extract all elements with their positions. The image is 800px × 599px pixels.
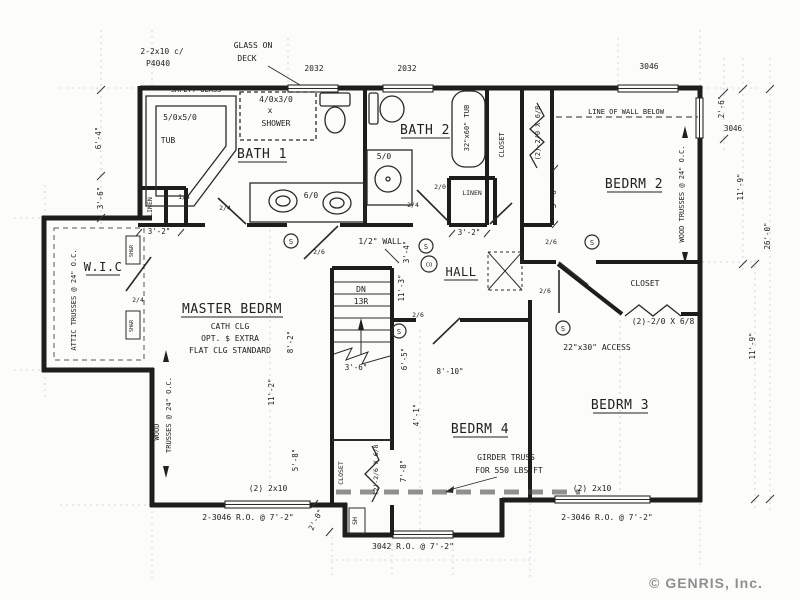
dim-8-10: 8'-10" [436, 367, 463, 376]
attic-access-note: 22"x30" ACCESS [563, 343, 631, 352]
truss-arrow-up [682, 126, 688, 138]
sink [375, 166, 401, 192]
room-label-master: MASTER BEDRM [182, 302, 282, 317]
smoke-detector-label: S [561, 325, 565, 333]
bedrm4-closet-door-size: (2)-2/6 X 6/8 [372, 444, 380, 495]
room-label-wic: W.I.C [84, 260, 123, 274]
shower-x-label: x [268, 106, 273, 115]
door-size-2-0: 2/0 [434, 183, 446, 191]
smoke-detector-label: S [397, 328, 401, 336]
shower-label: SHOWER [262, 119, 291, 128]
co-detector-label: CO [426, 263, 433, 269]
dim-11-2: 11'-2" [267, 378, 276, 405]
plan-text-labels: 2-2x10 c/ P4040 GLASS ON DECK 2032 2032 … [70, 41, 772, 591]
line-of-wall-below-note: LINE OF WALL BELOW [588, 108, 665, 116]
tub-size-label: 5/0x5/0 [163, 113, 197, 122]
tub-label: TUB [161, 136, 176, 145]
hall-closet-label: CLOSET [498, 132, 506, 158]
room-label-bath2: BATH 2 [400, 123, 450, 138]
smoke-detector-label: S [289, 238, 293, 246]
dim-8-2: 8'-2" [286, 331, 295, 354]
shelf-rod-label: SH&R [129, 319, 135, 332]
girder-leader [449, 477, 497, 490]
wood-truss-note-line1: WOOD [153, 424, 161, 441]
genris-watermark: © GENRIS, Inc. [649, 575, 763, 591]
door-size-2-4: 2/4 [407, 201, 419, 209]
room-label-bedrm2: BEDRM 2 [605, 177, 663, 192]
header-note-line2: P4040 [146, 59, 170, 68]
linen-closet-label: LINEN [462, 189, 482, 197]
scanned-floor-plan-page: S S CO S S S 2-2x10 c/ P4040 GLASS ON DE… [0, 0, 800, 599]
truss-arrow-up [163, 350, 169, 362]
dim-2-6: 2'-6" [717, 96, 726, 119]
opt-extra-note: OPT. $ EXTRA [201, 334, 259, 343]
dim-3-6: 3'-6" [549, 186, 558, 209]
linen-closet-label: LINEN [146, 197, 154, 217]
attic-access-box [488, 252, 522, 290]
smoke-detector-label: S [590, 239, 594, 247]
truss-arrow-down [163, 466, 169, 478]
shelf-label: SH [351, 517, 359, 525]
door-size-2-6: 2/6 [545, 238, 557, 246]
sink-inner [330, 198, 344, 208]
dim-3-2: 3'-2" [458, 228, 481, 237]
dim-11-9: 11'-9" [736, 173, 745, 200]
window-size-2032: 2032 [304, 64, 323, 73]
dim-7-8: 7'-8" [399, 460, 408, 483]
bedrm3-closet-door-size: (2)-2/0 X 6/8 [632, 317, 695, 326]
girder-truss-note-line1: GIRDER TRUSS [477, 453, 535, 462]
vanity-size-bath2: 5/0 [377, 152, 392, 161]
floor-plan-drawing: S S CO S S S 2-2x10 c/ P4040 GLASS ON DE… [0, 0, 800, 599]
door-size-1-4: 1/4 [178, 193, 190, 201]
dim-2-0: 2'-0" [307, 508, 326, 532]
flat-ceiling-note: FLAT CLG STANDARD [189, 346, 271, 355]
dim-6-4: 6'-4" [94, 127, 103, 150]
header-note-line1: 2-2x10 c/ [140, 47, 184, 56]
window-size-2032: 2032 [397, 64, 416, 73]
bath2-tub-size: 32"x60" TUB [463, 105, 471, 151]
toilet-bowl [325, 107, 345, 133]
toilet-tank [320, 93, 350, 106]
window-size-3046: 3046 [639, 62, 658, 71]
dim-5-8: 5'-8" [291, 449, 300, 472]
door-size-2-6: 2/6 [539, 287, 551, 295]
dim-3-6: 3'-6" [96, 187, 105, 210]
staircase [334, 282, 390, 364]
half-wall-note: 1/2" WALL [358, 237, 402, 246]
dim-26-0: 26'-0" [763, 222, 772, 249]
door-size-2-6: 2/6 [313, 248, 325, 256]
header-size-left: (2) 2x10 [249, 484, 288, 493]
window-size-3046-right: 3046 [724, 124, 743, 133]
header-size-right: (2) 2x10 [573, 484, 612, 493]
stairs-risers-label: 13R [354, 297, 369, 306]
safety-glass-note: SAFETY GLASS [171, 86, 222, 94]
room-label-bedrm3: BEDRM 3 [591, 398, 649, 413]
bedrm2-closet-door-size: (2)-2/0 X 6/8 [534, 106, 542, 161]
room-label-bath1: BATH 1 [237, 147, 287, 162]
door-size-2-4: 2/4 [132, 296, 144, 304]
door-size-2-4: 2/4 [219, 204, 231, 212]
sink-inner [386, 177, 390, 181]
glass-on-deck-note-line2: DECK [237, 54, 256, 63]
smoke-detector-label: S [424, 243, 428, 251]
toilet-bowl [380, 96, 404, 122]
glass-on-deck-note-line1: GLASS ON [234, 41, 273, 50]
dim-6-5: 6'-5" [400, 348, 409, 371]
bedrm3-closet-label: CLOSET [631, 279, 660, 288]
rough-opening-right: 2-3046 R.O. @ 7'-2" [561, 513, 653, 522]
dim-11-3: 11'-3" [397, 274, 406, 301]
shower-size-label: 4/0x3/0 [259, 95, 293, 104]
sink-inner [276, 196, 290, 206]
dim-3-2: 3'-2" [148, 227, 171, 236]
stair-direction-arrow [358, 318, 364, 330]
sink [269, 190, 297, 212]
rough-opening-middle: 3042 R.O. @ 7'-2" [372, 542, 454, 551]
attic-truss-note: ATTIC TRUSSES @ 24" O.C. [70, 249, 78, 350]
dim-11-9: 11'-9" [748, 332, 757, 359]
room-label-bedrm4: BEDRM 4 [451, 422, 509, 437]
cath-ceiling-note: CATH CLG [211, 322, 250, 331]
bedrm4-closet-label: CLOSET [337, 461, 345, 485]
wood-truss-note-line2: TRUSSES @ 24" O.C. [165, 377, 173, 453]
shelf-rod-label: SH&R [129, 244, 135, 257]
dim-3-4: 3'-4" [402, 241, 411, 264]
toilet-tank [369, 93, 378, 124]
room-label-hall: HALL [446, 265, 477, 279]
dim-4-1: 4'-1" [412, 404, 421, 427]
glass-leader [268, 66, 300, 85]
girder-truss-note-line2: FOR 550 LBS/FT [475, 466, 543, 475]
door-size-2-6: 2/6 [412, 311, 424, 319]
rough-opening-left: 2-3046 R.O. @ 7'-2" [202, 513, 294, 522]
vanity-counter [250, 183, 365, 222]
vanity-size-bath1: 6/0 [304, 191, 319, 200]
halfwall-leader [385, 249, 399, 263]
stairs-dn-label: DN [356, 285, 366, 294]
sink [323, 192, 351, 214]
dim-3-6-stairs: 3'-6" [345, 363, 368, 372]
bedrm2-truss-note: WOOD TRUSSES @ 24" O.C. [678, 146, 686, 243]
